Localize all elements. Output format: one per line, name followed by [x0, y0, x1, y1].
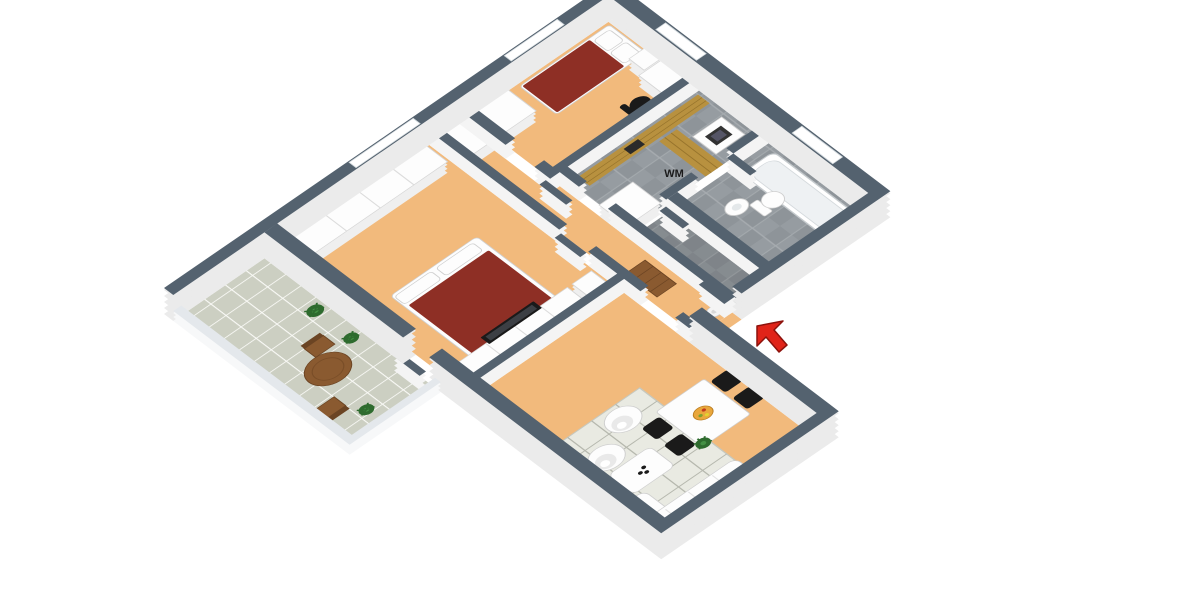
wm-label: WM: [664, 168, 684, 180]
floor-plan-page: WM: [0, 0, 1200, 600]
entrance-arrow-icon: [757, 321, 787, 352]
floor-plan-canvas: WM: [0, 0, 1200, 600]
